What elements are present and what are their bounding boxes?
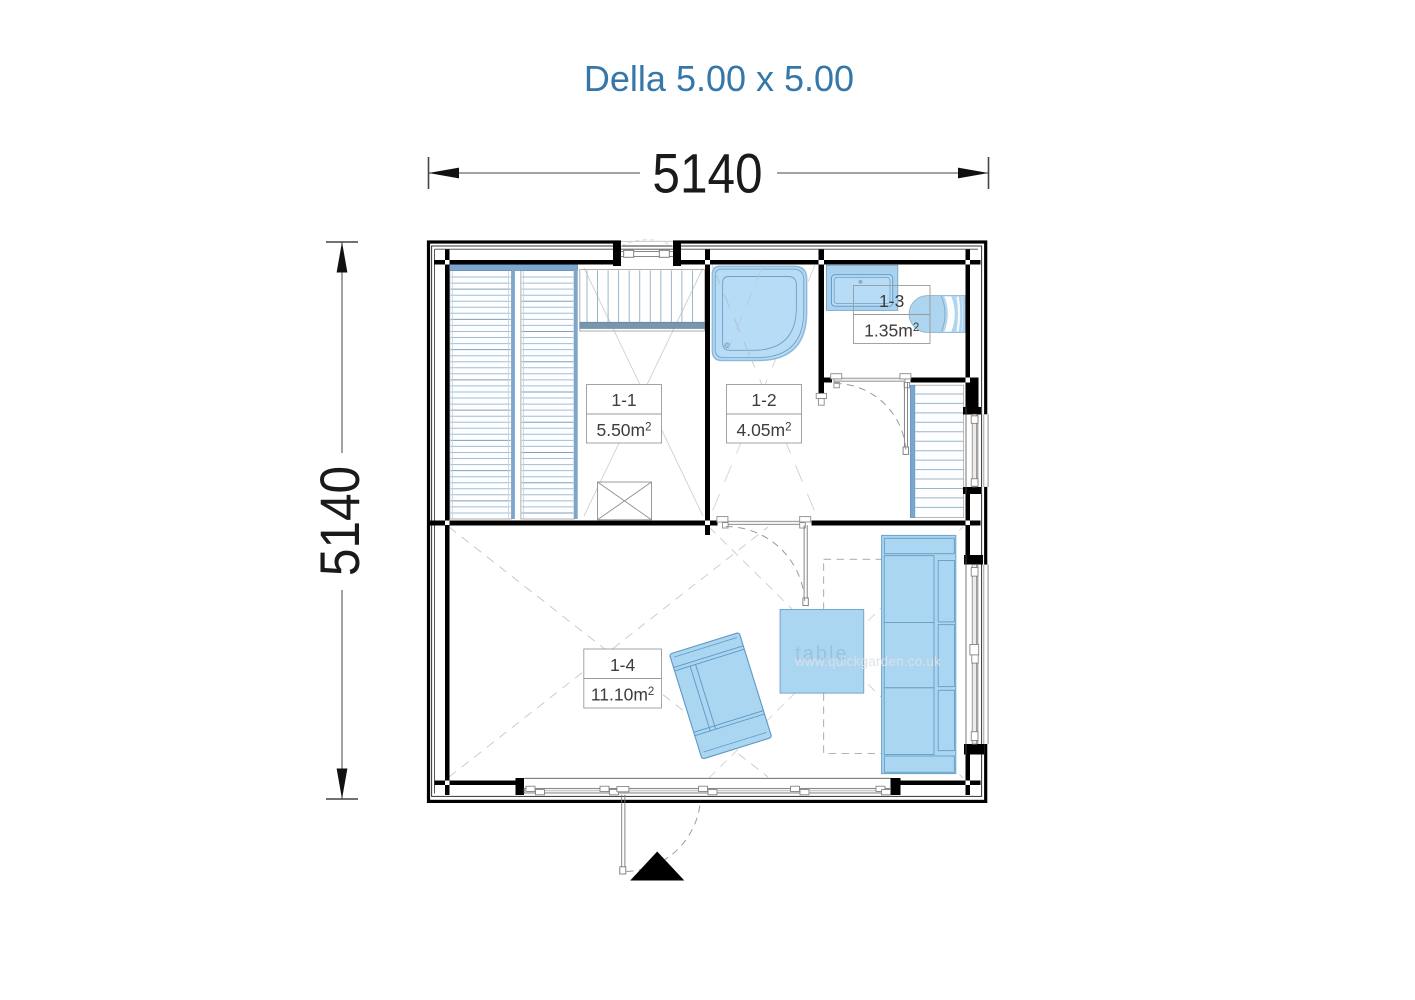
svg-text:1-3: 1-3 [879, 291, 904, 311]
svg-text:1-4: 1-4 [610, 655, 636, 675]
svg-text:4.05m2: 4.05m2 [736, 420, 791, 440]
svg-text:1.35m2: 1.35m2 [864, 321, 919, 341]
svg-text:5.50m2: 5.50m2 [596, 420, 651, 440]
svg-text:1-1: 1-1 [611, 390, 636, 410]
svg-text:5140: 5140 [652, 143, 762, 205]
svg-text:5140: 5140 [309, 466, 371, 576]
svg-text:Della 5.00 x 5.00: Della 5.00 x 5.00 [584, 58, 854, 99]
svg-text:1-2: 1-2 [751, 390, 776, 410]
svg-text:11.10m2: 11.10m2 [591, 685, 654, 705]
svg-text:www.quickgarden.co.uk: www.quickgarden.co.uk [794, 654, 941, 669]
